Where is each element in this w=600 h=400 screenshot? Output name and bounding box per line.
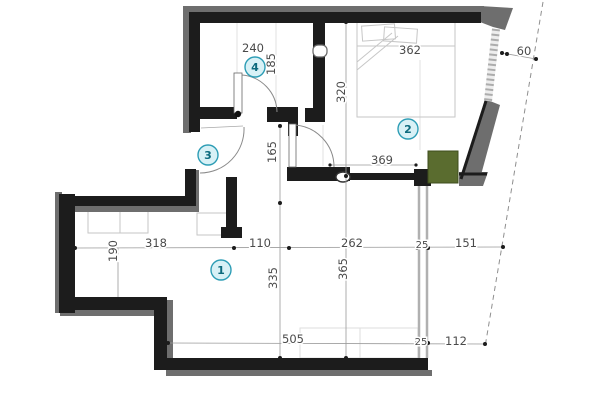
wall-marker-capsule (313, 45, 327, 57)
shaft-block (428, 151, 458, 183)
room-number: 3 (204, 149, 212, 162)
dimension-label: 185 (264, 53, 278, 75)
dimension-label: 369 (371, 153, 393, 167)
room-badge-3: 3 (198, 145, 218, 165)
dimension-label: 365 (336, 258, 350, 280)
dimension-label: 25 (415, 337, 428, 348)
dimension-label: 335 (266, 267, 280, 289)
dimension-label: 505 (282, 332, 304, 346)
dimension-label: 151 (455, 236, 477, 250)
door-arc-room2 (294, 125, 334, 167)
room-number: 2 (404, 123, 412, 136)
room-number: 4 (251, 61, 259, 74)
room-badge-2: 2 (398, 119, 418, 139)
dimension-label: 190 (106, 240, 120, 262)
dimension-label: 60 (517, 44, 532, 58)
floor-plan: 2401853626032016536931811026225151190335… (0, 0, 600, 400)
bed (357, 22, 455, 117)
glass-partition (419, 186, 427, 358)
dimension-label: 25 (416, 240, 429, 251)
door-leaf-room2 (289, 124, 296, 167)
wall-shadows (55, 6, 513, 376)
door-arc-room4 (242, 75, 277, 112)
kitchen-counter (88, 208, 418, 358)
dimension-label: 318 (145, 236, 167, 250)
wall-marker-oval (336, 172, 350, 182)
room-number: 1 (217, 264, 225, 277)
window-strip (488, 29, 496, 101)
room-badge-4: 4 (245, 57, 265, 77)
floor-plan-canvas: 2401853626032016536931811026225151190335… (0, 0, 600, 400)
dimension-label: 165 (265, 141, 279, 163)
dimension-label: 362 (399, 43, 421, 57)
door-leaf-room4 (234, 73, 242, 113)
dimension-label: 112 (445, 334, 467, 348)
dimension-label: 240 (242, 41, 264, 55)
dimension-label: 110 (249, 236, 271, 250)
dimension-label: 262 (341, 236, 363, 250)
room-badge-1: 1 (211, 260, 231, 280)
dimension-label: 320 (334, 81, 348, 103)
